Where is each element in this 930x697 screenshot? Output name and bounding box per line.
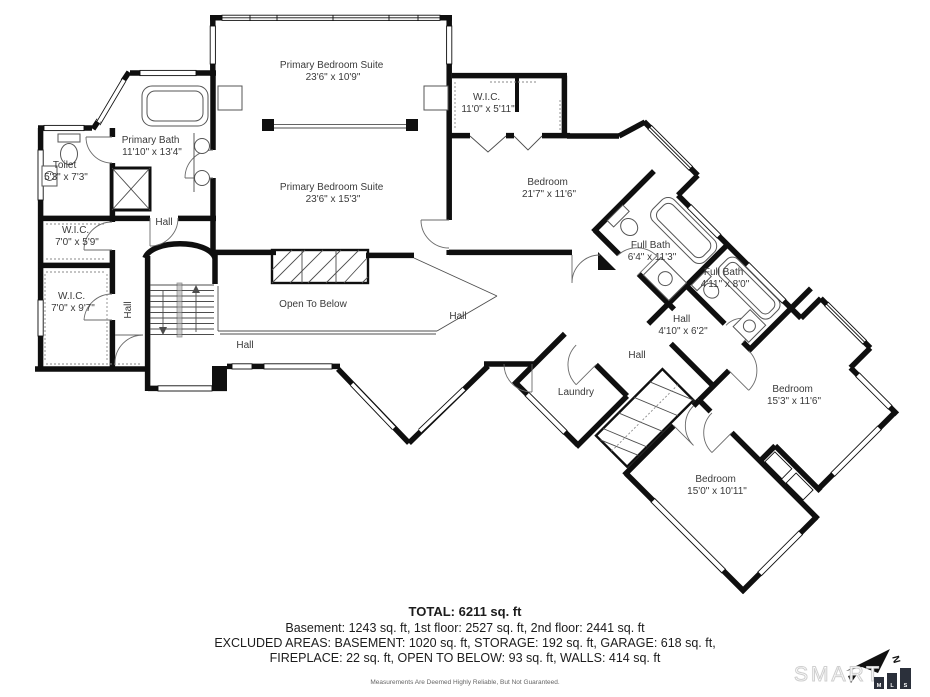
hall-label-4: Hall bbox=[628, 350, 645, 361]
room-label-bedroom-150: Bedroom 15'0" x 10'11" bbox=[687, 474, 747, 497]
room-label-wic-97: W.I.C. 7'0" x 9'7" bbox=[51, 291, 95, 314]
room-label-wic-59: W.I.C. 7'0" x 5'9" bbox=[55, 225, 99, 248]
floors-areas: Basement: 1243 sq. ft, 1st floor: 2527 s… bbox=[0, 621, 930, 635]
ortho-doors bbox=[84, 137, 600, 392]
room-label-primary-bath: Primary Bath 11'10" x 13'4" bbox=[122, 135, 183, 158]
open-to-below-outline bbox=[218, 258, 497, 334]
logo-bar-m: M bbox=[874, 677, 884, 689]
laundry-label: Laundry bbox=[558, 387, 594, 398]
logo-wordmark: SMART bbox=[794, 663, 882, 687]
hall-label-vertical: Hall bbox=[123, 301, 134, 318]
room-label-full-bath-2: Full Bath 4'11" x 8'0" bbox=[701, 267, 750, 290]
room-label-full-bath-1: Full Bath 6'4" x 11'3" bbox=[628, 240, 677, 263]
floorplan-svg: Primary Bedroom Suite 23'6" x 10'9" W.I.… bbox=[0, 0, 930, 600]
diagonal-wing bbox=[447, 119, 930, 600]
ortho-fixtures bbox=[42, 86, 448, 364]
room-label-bedroom-217: Bedroom 21'7" x 11'6" bbox=[522, 177, 577, 200]
logo-bar-l: L bbox=[887, 673, 897, 689]
logo-mls-bars: M L S bbox=[874, 667, 920, 689]
room-label-primary-suite-upper: Primary Bedroom Suite 23'6" x 10'9" bbox=[280, 60, 386, 83]
logo-bar-s: S bbox=[900, 668, 911, 689]
hall-label-2: Hall bbox=[236, 340, 253, 351]
room-label-wic-110: W.I.C. 11'0" x 5'11" bbox=[461, 92, 515, 115]
smartmls-logo: N SMART M L S bbox=[790, 645, 925, 695]
room-label-toilet: Toilet 5'3" x 7'3" bbox=[44, 160, 88, 183]
room-label-primary-suite-lower: Primary Bedroom Suite 23'6" x 15'3" bbox=[280, 182, 386, 205]
floorplan-page: Primary Bedroom Suite 23'6" x 10'9" W.I.… bbox=[0, 0, 930, 697]
room-label-bedroom-153: Bedroom 15'3" x 11'6" bbox=[767, 384, 822, 407]
hall-label-3: Hall bbox=[449, 311, 466, 322]
hall-label-1: Hall bbox=[155, 217, 172, 228]
total-area: TOTAL: 6211 sq. ft bbox=[0, 604, 930, 619]
stairs bbox=[150, 283, 214, 337]
ortho-windows bbox=[38, 15, 452, 391]
open-to-below-label: Open To Below bbox=[279, 299, 347, 310]
svg-text:N: N bbox=[889, 655, 901, 665]
